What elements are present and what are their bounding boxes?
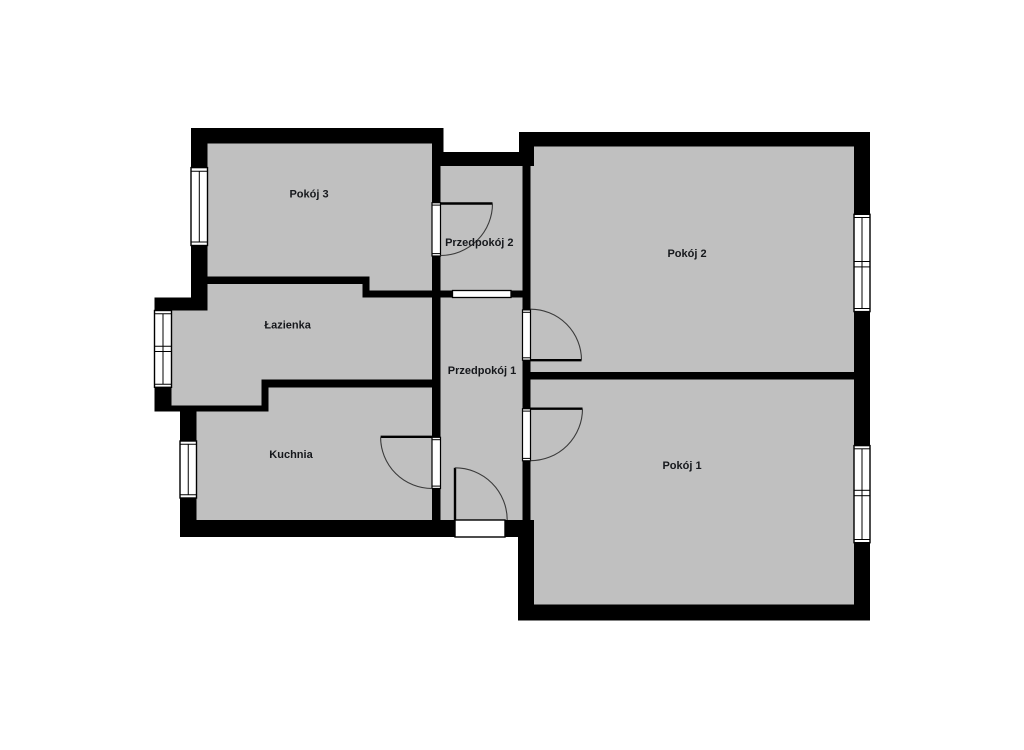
- svg-text:Pokój 1: Pokój 1: [662, 460, 701, 472]
- svg-text:Pokój 3: Pokój 3: [289, 189, 328, 201]
- svg-text:Pokój 2: Pokój 2: [667, 248, 706, 260]
- svg-text:Łazienka: Łazienka: [264, 319, 311, 331]
- svg-text:Kuchnia: Kuchnia: [269, 449, 313, 461]
- svg-text:Przedpokój 1: Przedpokój 1: [448, 365, 516, 377]
- svg-text:Przedpokój 2: Przedpokój 2: [445, 237, 513, 249]
